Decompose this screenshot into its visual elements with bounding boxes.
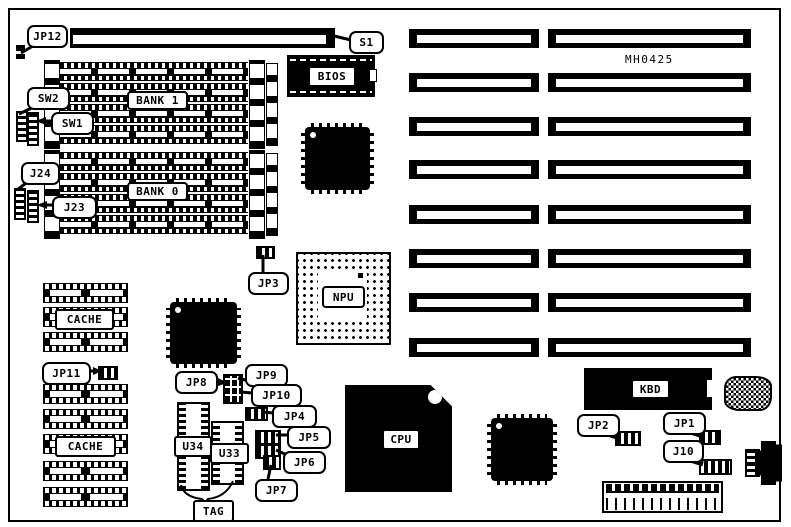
kbd-label: KBD bbox=[632, 380, 669, 398]
sw1-arrowhead bbox=[36, 117, 46, 125]
j23-label: J23 bbox=[52, 196, 97, 219]
cpu-label: CPU bbox=[383, 430, 419, 449]
jp10-label: JP10 bbox=[251, 384, 302, 407]
jp8-label: JP8 bbox=[175, 371, 218, 394]
bank1-label: BANK 1 bbox=[127, 91, 188, 110]
sw1-label: SW1 bbox=[51, 112, 94, 135]
sw2-label: SW2 bbox=[27, 87, 70, 110]
bank0-label: BANK 0 bbox=[127, 182, 188, 201]
jp1-label: JP1 bbox=[663, 412, 706, 435]
j24-label: J24 bbox=[21, 162, 60, 185]
jp11-label: JP11 bbox=[42, 362, 91, 385]
u34-label: U34 bbox=[174, 436, 212, 457]
jp4-label: JP4 bbox=[272, 405, 317, 428]
jp3-label: JP3 bbox=[248, 272, 289, 295]
u33-label: U33 bbox=[210, 443, 249, 464]
jp7-tail bbox=[268, 465, 271, 479]
s1-label: S1 bbox=[349, 31, 384, 54]
j10-label: J10 bbox=[663, 440, 704, 463]
tag-label: TAG bbox=[193, 500, 234, 522]
cache-upper-label: CACHE bbox=[55, 309, 114, 330]
cache-lower-label: CACHE bbox=[55, 436, 116, 457]
jp11-arrowhead bbox=[93, 367, 102, 375]
motherboard-layout-diagram: MH0425 BIOS NPU CACHE bbox=[0, 0, 791, 527]
jp5-label: JP5 bbox=[287, 426, 331, 449]
j23-arrowhead bbox=[37, 201, 47, 209]
jp7-label: JP7 bbox=[255, 479, 298, 502]
jp12-label: JP12 bbox=[27, 25, 68, 48]
bios-label: BIOS bbox=[309, 67, 355, 86]
npu-label: NPU bbox=[322, 286, 365, 308]
jp2-label: JP2 bbox=[577, 414, 620, 437]
jp6-label: JP6 bbox=[283, 451, 326, 474]
jp8-arrowhead bbox=[218, 378, 227, 386]
